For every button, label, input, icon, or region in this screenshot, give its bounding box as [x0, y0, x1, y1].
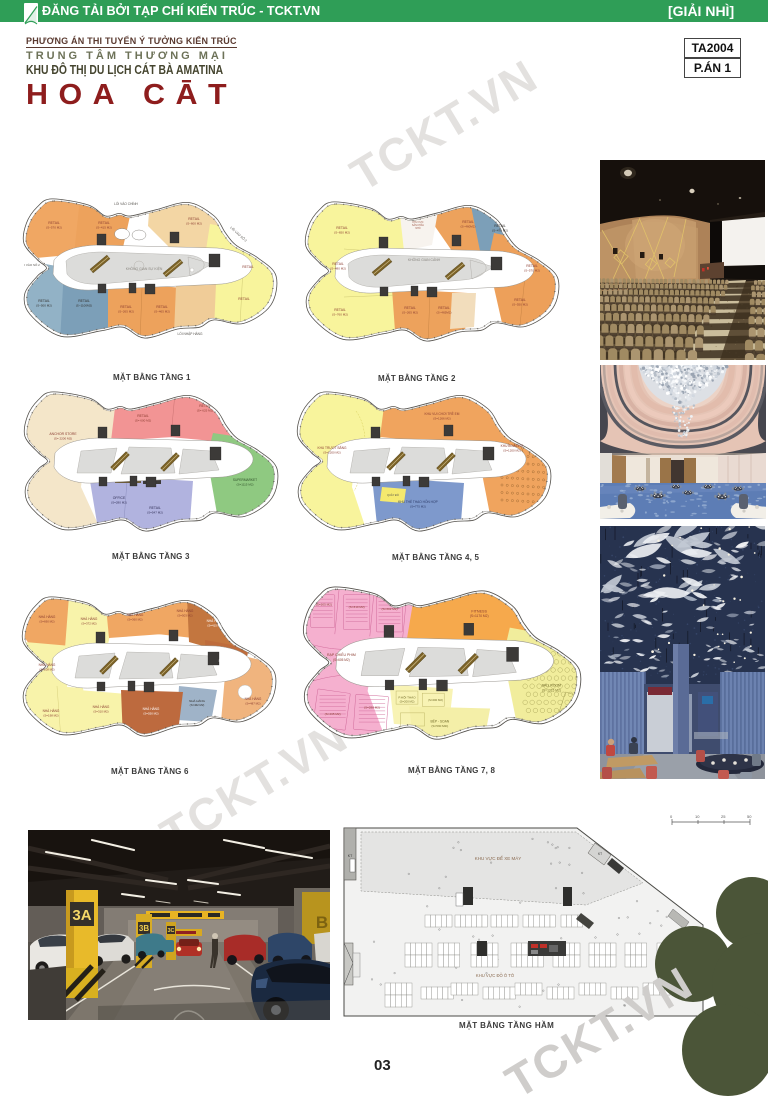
svg-text:RETAIL: RETAIL: [38, 299, 50, 303]
svg-text:NHỎ: NHỎ: [415, 227, 420, 230]
svg-text:RETAIL: RETAIL: [137, 414, 149, 418]
svg-text:KHÔNG GIAN CẢNH: KHÔNG GIAN CẢNH: [408, 257, 441, 262]
svg-text:RETAIL: RETAIL: [462, 220, 474, 224]
svg-text:(S~600 M2): (S~600 M2): [186, 222, 202, 226]
svg-text:10: 10: [695, 814, 700, 819]
svg-text:I VÀO SỐ 2: I VÀO SỐ 2: [24, 262, 40, 267]
svg-text:(S=392 M2): (S=392 M2): [381, 607, 397, 611]
svg-text:(S=775 M2): (S=775 M2): [410, 505, 426, 509]
svg-text:(S~550 M2): (S~550 M2): [512, 303, 528, 307]
svg-text:KHU VUI CHƠI TRẺ EM: KHU VUI CHƠI TRẺ EM: [425, 411, 460, 416]
svg-text:RETAIL: RETAIL: [514, 298, 526, 302]
svg-text:(S=487 M2): (S=487 M2): [245, 702, 260, 706]
svg-text:ANCHOR STORE: ANCHOR STORE: [49, 432, 77, 436]
svg-text:LỐI VÀO CHÍNH: LỐI VÀO CHÍNH: [114, 201, 138, 206]
svg-text:(S=310 M2): (S=310 M2): [93, 710, 108, 714]
svg-text:RETAIL: RETAIL: [238, 297, 250, 301]
svg-text:KHU BOWLING: KHU BOWLING: [501, 444, 524, 448]
svg-text:(S=1315 M2): (S=1315 M2): [542, 689, 561, 693]
svg-text:(S=360 M2): (S=360 M2): [127, 618, 142, 622]
svg-text:KHÔNG GIAN SỰ KIỆN: KHÔNG GIAN SỰ KIỆN: [126, 266, 163, 271]
svg-text:(S= 600 M2): (S= 600 M2): [135, 419, 152, 423]
svg-text:(S=462 M2): (S=462 M2): [190, 703, 205, 707]
svg-text:FITNESS: FITNESS: [471, 609, 487, 613]
svg-text:(S~460M2): (S~460M2): [461, 225, 476, 229]
svg-text:(S=372 M2): (S=372 M2): [81, 622, 96, 626]
svg-text:RẠP CHIẾU PHIM: RẠP CHIẾU PHIM: [327, 652, 356, 657]
svg-text:RETAIL: RETAIL: [156, 305, 168, 309]
svg-text:(S=2200 M2): (S=2200 M2): [323, 451, 340, 455]
svg-text:RETAIL: RETAIL: [526, 264, 538, 268]
svg-text:(S~265 M2): (S~265 M2): [118, 310, 134, 314]
svg-text:RETAIL: RETAIL: [199, 404, 211, 408]
svg-text:KHU THỂ THAO HỖN HỢP: KHU THỂ THAO HỖN HỢP: [398, 499, 438, 504]
svg-text:(S~265 M2): (S~265 M2): [402, 311, 418, 315]
svg-text:3A: 3A: [72, 907, 91, 924]
svg-text:RETAIL: RETAIL: [438, 306, 450, 310]
svg-text:(S=415 M2): (S=415 M2): [207, 624, 222, 628]
svg-text:NHÀ HÀNG: NHÀ HÀNG: [219, 659, 236, 663]
svg-text:(S=200 M2): (S=200 M2): [428, 698, 443, 702]
svg-text:(S=252 M2): (S=252 M2): [219, 664, 234, 668]
svg-text:(S=550 M2): (S=550 M2): [143, 712, 158, 716]
svg-text:BALLROOM: BALLROOM: [542, 684, 562, 688]
svg-text:KHU TRƯỢT BĂNG: KHU TRƯỢT BĂNG: [317, 446, 347, 450]
svg-text:(S=305 M2): (S=305 M2): [316, 603, 332, 607]
svg-text:(S=1266 M2): (S=1266 M2): [433, 417, 450, 421]
svg-text:0: 0: [670, 814, 673, 819]
svg-text:(S~465 M2): (S~465 M2): [154, 310, 170, 314]
svg-text:NHÀ HÀNG: NHÀ HÀNG: [39, 663, 56, 667]
svg-text:RETAIL: RETAIL: [332, 262, 344, 266]
svg-text:KHU VỰC ĐỂ XE MÁY: KHU VỰC ĐỂ XE MÁY: [475, 855, 522, 861]
svg-text:(S= 625 M2): (S= 625 M2): [197, 409, 214, 413]
svg-text:25: 25: [721, 814, 726, 819]
svg-text:(S=198 M2): (S=198 M2): [43, 714, 58, 718]
svg-text:(S~500 M2): (S~500 M2): [36, 304, 52, 308]
svg-text:RETAIL: RETAIL: [120, 305, 132, 309]
svg-text:(S=200 M2): (S=200 M2): [400, 699, 415, 703]
svg-text:(S~465M2): (S~465M2): [437, 311, 452, 315]
svg-text:(S=1115 M2): (S=1115 M2): [237, 483, 254, 487]
svg-text:RETAIL: RETAIL: [334, 308, 346, 312]
svg-text:(S~650 M2): (S~650 M2): [334, 231, 350, 235]
svg-text:(S=547 M2): (S=547 M2): [147, 511, 163, 515]
svg-text:NHÀ HÀNG: NHÀ HÀNG: [207, 619, 224, 623]
svg-text:(S=690 M2): (S=690 M2): [39, 620, 54, 624]
svg-text:50: 50: [747, 814, 752, 819]
svg-text:RETAIL: RETAIL: [149, 506, 161, 510]
svg-text:RETAIL: RETAIL: [494, 224, 506, 228]
svg-text:NHÀ HÀNG: NHÀ HÀNG: [177, 609, 194, 613]
svg-text:(S=530 M2t): (S=530 M2t): [431, 724, 448, 728]
svg-text:NHÀ HÀNG: NHÀ HÀNG: [81, 617, 98, 621]
svg-text:(S~570 M2): (S~570 M2): [46, 226, 62, 230]
svg-text:SUPERMARKET: SUPERMARKET: [233, 478, 257, 482]
svg-text:3B: 3B: [139, 924, 149, 933]
svg-text:LỐI NHẬP HÀNG: LỐI NHẬP HÀNG: [178, 331, 203, 336]
svg-text:(S= 2200 M2): (S= 2200 M2): [54, 437, 72, 441]
svg-text:RETAIL: RETAIL: [98, 221, 110, 225]
svg-text:LỐI VÀO SỐ 3: LỐI VÀO SỐ 3: [229, 225, 248, 243]
svg-text:(S~480 M2): (S~480 M2): [330, 267, 346, 271]
svg-text:(S=1200 M2): (S=1200 M2): [503, 449, 520, 453]
svg-text:(S~570 M2): (S~570 M2): [524, 269, 540, 273]
svg-text:RETAIL: RETAIL: [336, 226, 348, 230]
svg-text:(S=288 M2): (S=288 M2): [364, 706, 380, 710]
svg-text:RETAIL: RETAIL: [404, 306, 416, 310]
svg-text:(S=1170 M2): (S=1170 M2): [470, 614, 489, 618]
svg-text:BẾP - SOẠN: BẾP - SOẠN: [430, 719, 449, 724]
svg-text:B: B: [316, 913, 328, 932]
svg-text:(S=280 M2): (S=280 M2): [111, 501, 127, 505]
svg-text:RETAIL: RETAIL: [48, 221, 60, 225]
svg-text:(S~470 M2): (S~470 M2): [492, 229, 508, 233]
svg-text:(S~415 M2): (S~415 M2): [96, 226, 112, 230]
svg-text:NHÀ HÀNG: NHÀ HÀNG: [43, 709, 60, 713]
svg-text:(S~760 M2): (S~760 M2): [332, 313, 348, 317]
svg-text:NHÀ HÀNG: NHÀ HÀNG: [127, 613, 144, 617]
svg-text:NHÀ HÀNG: NHÀ HÀNG: [245, 697, 262, 701]
svg-text:KHU VỰC ĐỖ Ô TÔ: KHU VỰC ĐỖ Ô TÔ: [476, 973, 515, 978]
svg-text:(S=310 M2): (S=310 M2): [349, 605, 365, 609]
svg-text:RETAIL: RETAIL: [242, 265, 254, 269]
svg-text:KT: KT: [598, 852, 602, 856]
svg-text:NHÀ HÀNG: NHÀ HÀNG: [143, 707, 160, 711]
svg-text:(S=605 M2): (S=605 M2): [333, 658, 350, 662]
svg-text:(S~1100M2): (S~1100M2): [76, 304, 92, 308]
svg-text:NHÀ HÀNG: NHÀ HÀNG: [39, 615, 56, 619]
svg-text:(S=503 M2): (S=503 M2): [177, 614, 192, 618]
svg-text:OFFICE: OFFICE: [113, 496, 126, 500]
svg-text:NHÀ HÀNG: NHÀ HÀNG: [93, 705, 110, 709]
svg-text:3C: 3C: [167, 928, 174, 934]
svg-text:RETAIL: RETAIL: [188, 217, 200, 221]
svg-text:RETAIL: RETAIL: [78, 299, 90, 303]
svg-text:(S=495 M2): (S=495 M2): [325, 712, 341, 716]
svg-text:(S=108 M2): (S=108 M2): [39, 668, 54, 672]
